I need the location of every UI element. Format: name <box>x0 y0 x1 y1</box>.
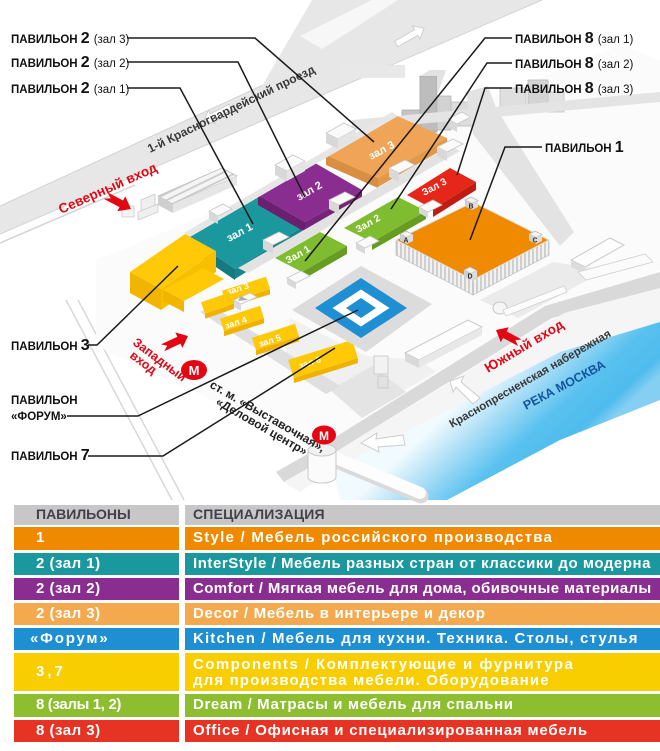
svg-text:ПАВИЛЬОН 2(зал 3): ПАВИЛЬОН 2(зал 3) <box>11 30 129 47</box>
svg-text:С: С <box>533 238 538 245</box>
svg-text:А: А <box>404 238 409 245</box>
svg-text:ПАВИЛЬОН 8(зал 1): ПАВИЛЬОН 8(зал 1) <box>515 30 633 47</box>
svg-text:«ФОРУМ»: «ФОРУМ» <box>11 411 67 423</box>
svg-text:ПАВИЛЬОН 3: ПАВИЛЬОН 3 <box>11 337 90 354</box>
svg-text:ПАВИЛЬОН: ПАВИЛЬОН <box>11 395 78 407</box>
svg-text:В: В <box>469 204 474 211</box>
svg-text:ПАВИЛЬОН 2(зал 1): ПАВИЛЬОН 2(зал 1) <box>11 80 129 97</box>
svg-text:D: D <box>468 274 473 281</box>
svg-text:М: М <box>189 363 200 378</box>
svg-text:ПАВИЛЬОН 2(зал 2): ПАВИЛЬОН 2(зал 2) <box>11 54 129 71</box>
svg-text:1-й Красногвардейский проезд: 1-й Красногвардейский проезд <box>145 62 317 156</box>
svg-text:ПАВИЛЬОН 7: ПАВИЛЬОН 7 <box>11 447 90 464</box>
